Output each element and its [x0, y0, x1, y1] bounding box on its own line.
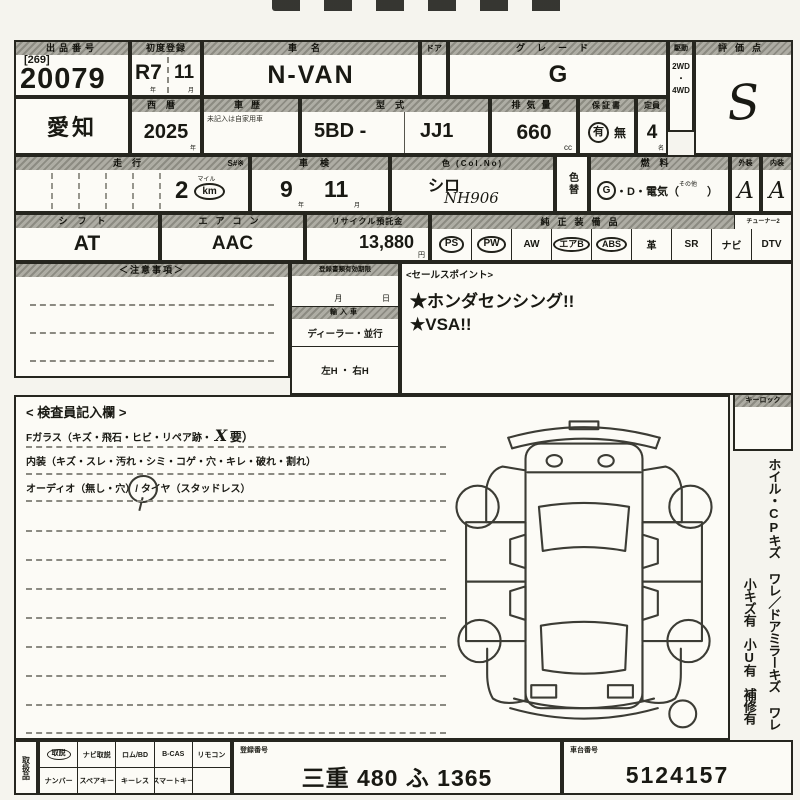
first-registration-month: 11: [174, 62, 194, 84]
model-code: JJ1: [420, 120, 453, 143]
equipment-item-label: 革: [647, 237, 657, 252]
sales-points-cell: <セールスポイント> ★ホンダセンシング!! ★VSA!!: [400, 262, 793, 395]
item-label: リモコン: [197, 750, 225, 760]
item-label: B-CAS: [162, 751, 184, 758]
drive-option-2wd: 2WD: [670, 61, 692, 73]
notes-dashed-line: [30, 332, 274, 334]
item-label: ロム/BD: [122, 750, 148, 760]
drive-option-4wd: 4WD: [670, 85, 692, 97]
item-label: スマートキー: [154, 776, 192, 786]
mile-char: マイル: [197, 174, 215, 183]
equipment-item-label: PW: [477, 236, 505, 253]
color-change-label: 色替: [565, 172, 580, 196]
shift-value: AT: [74, 232, 100, 256]
model-inner-divider: [404, 112, 405, 153]
year-char: 年: [150, 85, 156, 94]
equipment-item-label: SR: [685, 239, 699, 250]
first-registration-label: 初度登録: [132, 42, 200, 55]
auction-number-cell: 出品番号 [269] 20079: [14, 40, 130, 97]
inspection-year: 9: [280, 176, 293, 203]
equipment-item-dtv: DTV: [751, 229, 791, 260]
notes-label: ＜注意事項＞: [16, 264, 288, 277]
km-unit-circled: km: [194, 183, 224, 200]
exterior-grade: A: [737, 178, 754, 204]
score-cell: 評価点 S: [694, 40, 793, 155]
equipment-item-label: ナビ: [722, 237, 742, 252]
sales-point-1: ★ホンダセンシング!!: [402, 281, 791, 312]
inspector-dashed-line: [26, 473, 446, 475]
fuel-label: 燃料: [591, 157, 728, 170]
fuel-other-label: その他: [679, 179, 697, 188]
cropped-title-fragment: [272, 0, 572, 11]
region-value: 愛知: [47, 110, 97, 142]
tuner-label: チューナー2: [734, 215, 791, 229]
keylock-label: キーロック: [735, 395, 791, 407]
inspector-dashed-line: [26, 530, 446, 532]
era-month-divider: [167, 57, 169, 93]
inspector-line1-mark: X: [215, 426, 227, 445]
recycle-amount: 13,880: [359, 232, 414, 253]
inspector-dashed-line: [26, 675, 446, 677]
displacement-cell: 排気量 660 cc: [490, 97, 578, 155]
interior-grade-cell: 内装 A: [761, 155, 793, 213]
equipment-item-label: ABS: [596, 237, 627, 252]
door-cell: ドア: [420, 40, 448, 97]
yen-char: 円: [418, 250, 425, 260]
first-registration-era: R7: [135, 61, 162, 85]
car-top-view-diagram: [446, 409, 722, 735]
sales-points-label: <セールスポイント>: [402, 264, 791, 281]
model-code-cell: 型式 5BD - JJ1: [300, 97, 490, 155]
year-label: 西暦: [132, 99, 200, 112]
mileage-digit-slot: [53, 173, 80, 209]
recycle-label: リサイクル預託金: [307, 215, 428, 228]
handle-options: 左H ・ 右H: [292, 347, 398, 393]
inspector-dashed-line: [26, 446, 446, 448]
equipment-item-leather: 革: [631, 229, 671, 260]
drive-label: 駆動: [670, 42, 692, 55]
documents-cell: 登録書類有効期限 月 日 輸入車 ディーラー・並行 左H ・ 右H: [290, 262, 400, 395]
year-cell: 西暦 2025 年: [130, 97, 202, 155]
margin-remarks: ホイル・CPキズ ワレ／ドアミラーキズ ワレ 小キズ有 小U有 補修有: [736, 458, 785, 746]
item-label: キーレス: [121, 776, 149, 786]
history-label: 車歴: [204, 99, 298, 112]
capacity-label: 定員: [638, 99, 666, 112]
auction-number-value: 20079: [20, 63, 106, 96]
inspector-title: < 検査員記入欄 >: [26, 402, 126, 421]
inspection-label: 車検: [252, 157, 388, 170]
registration-number-cell: 登録番号 三重 480 ふ 1365: [232, 740, 562, 795]
inspection-month-char: 月: [354, 200, 360, 209]
equipment-item-label: DTV: [762, 239, 782, 250]
equipment-label: 純正装備品: [432, 215, 734, 229]
inspection-year-char: 年: [298, 200, 304, 209]
item-empty: [192, 768, 230, 793]
doc-expiry-label: 登録書類有効期限: [292, 264, 398, 276]
warranty-cell: 保証書 有 無: [578, 97, 636, 155]
margin-remark-line1: ホイル・CPキズ ワレ／ドアミラーキズ ワレ: [761, 458, 786, 746]
shift-label: シフト: [16, 215, 158, 228]
score-label: 評価点: [696, 42, 791, 55]
item-manual: 取説: [40, 742, 77, 767]
drive-option-dot: ・: [670, 73, 692, 85]
chassis-number-label: 車台番号: [570, 745, 598, 755]
mileage-label: 走行: [113, 158, 151, 168]
mileage-digit-slot: [107, 173, 134, 209]
mileage-digit-slot: [134, 173, 161, 209]
warranty-yes-circled: 有: [588, 122, 609, 143]
equipment-item-label: エアB: [553, 237, 590, 252]
aircon-cell: エアコン AAC: [160, 213, 305, 262]
shift-cell: シフト AT: [14, 213, 160, 262]
fuel-options: ・D・電気（: [616, 183, 679, 199]
item-remote: リモコン: [192, 742, 230, 767]
grade-cell: グレード G: [448, 40, 668, 97]
equipment-item-label: AW: [523, 239, 539, 250]
aircon-label: エアコン: [162, 215, 303, 228]
year-char: 年: [190, 143, 196, 152]
item-label: ナンバー: [45, 776, 73, 786]
inspector-dashed-line: [26, 646, 446, 648]
equipment-cell: 純正装備品 チューナー2 PS PW AW エアB ABS 革 SR ナビ DT…: [430, 213, 793, 262]
doc-month-char: 月: [334, 293, 342, 304]
equipment-item-airbag: エアB: [551, 229, 591, 260]
inspector-dashed-line: [26, 704, 446, 706]
keylock-cell: キーロック: [733, 393, 793, 451]
color-cell: 色 (Col.No) シロ NH906: [390, 155, 555, 213]
item-rom-bd: ロム/BD: [115, 742, 153, 767]
color-label: 色 (Col.No): [392, 157, 553, 170]
sales-point-2: ★VSA!!: [402, 312, 791, 335]
item-keyless: キーレス: [115, 768, 153, 793]
model-prefix: 5BD -: [314, 120, 366, 143]
inspector-section: < 検査員記入欄 > Fガラス（キズ・飛石・ヒビ・リペア跡・ X 要） 内装（キ…: [14, 395, 730, 740]
displacement-unit: cc: [564, 143, 572, 152]
grade-value: G: [549, 61, 568, 89]
inspector-line2: 内装（キズ・スレ・汚れ・シミ・コゲ・穴・キレ・破れ・割れ）: [26, 453, 316, 468]
item-spare-key: スペアキー: [77, 768, 115, 793]
margin-remark-line2: 小キズ有 小U有 補修有: [736, 458, 761, 746]
displacement-label: 排気量: [492, 99, 576, 112]
registration-number-value: 三重 480 ふ 1365: [302, 759, 493, 793]
inspector-dashed-line: [26, 559, 446, 561]
item-label: 取説: [47, 749, 71, 760]
mileage-s-label: S#※: [228, 157, 245, 170]
import-options: ディーラー・並行: [292, 319, 398, 347]
inspection-cell: 車検 9 年 11 月: [250, 155, 390, 213]
equipment-item-ps: PS: [432, 229, 471, 260]
fuel-cell: 燃料 G ・D・電気（ その他 ）: [589, 155, 730, 213]
capacity-unit: 名: [658, 143, 664, 152]
included-items-grid: 取説 ナビ取説 ロム/BD B-CAS リモコン ナンバー スペアキー キーレス…: [38, 740, 232, 795]
history-cell: 車歴 未記入は自家用車: [202, 97, 300, 155]
mileage-digit-slot: [80, 173, 107, 209]
mileage-cell: 走行 S#※ 2 マイル km: [14, 155, 250, 213]
registration-number-label: 登録番号: [240, 745, 268, 755]
color-number-handwritten: NH906: [444, 189, 499, 207]
exterior-label: 外装: [732, 157, 759, 170]
interior-label: 内装: [763, 157, 791, 170]
equipment-item-pw: PW: [471, 229, 511, 260]
capacity-cell: 定員 4 名: [636, 97, 668, 155]
equipment-item-label: PS: [439, 236, 464, 253]
first-registration-cell: 初度登録 R7 11 年 月: [130, 40, 202, 97]
import-label: 輸入車: [292, 307, 398, 319]
score-value: S: [725, 74, 762, 132]
equipment-item-aw: AW: [511, 229, 551, 260]
chassis-number-cell: 車台番号 5124157: [562, 740, 793, 795]
car-name-cell: 車名 N-VAN: [202, 40, 420, 97]
drive-cell: 駆動 2WD ・ 4WD: [668, 40, 694, 132]
item-bcas: B-CAS: [154, 742, 192, 767]
item-label: スペアキー: [80, 776, 115, 786]
inspector-dashed-line: [26, 588, 446, 590]
recycle-deposit-cell: リサイクル預託金 13,880 円: [305, 213, 430, 262]
notes-dashed-line: [30, 304, 274, 306]
equipment-item-sr: SR: [671, 229, 711, 260]
included-items-label-cell: 取扱品: [14, 740, 38, 795]
equipment-item-abs: ABS: [591, 229, 631, 260]
equipment-item-navi: ナビ: [711, 229, 751, 260]
auction-sheet: 出品番号 [269] 20079 初度登録 R7 11 年 月 車名 N-VAN…: [0, 0, 800, 800]
warranty-label: 保証書: [580, 99, 634, 112]
fuel-paren-close: ）: [707, 183, 718, 199]
chassis-number-value: 5124157: [626, 762, 730, 789]
grade-label: グレード: [450, 42, 666, 55]
month-char: 月: [188, 85, 194, 94]
inspection-month: 11: [324, 176, 348, 203]
exterior-grade-cell: 外装 A: [730, 155, 761, 213]
item-navi-manual: ナビ取説: [77, 742, 115, 767]
item-number-plate: ナンバー: [40, 768, 77, 793]
inspector-line1-post: 要）: [230, 430, 254, 444]
inspector-dashed-line: [26, 732, 446, 734]
included-items-label: 取扱品: [21, 756, 32, 780]
history-note: 未記入は自家用車: [204, 112, 298, 126]
notes-dashed-line: [30, 360, 274, 362]
region-cell: 愛知: [14, 97, 130, 155]
inspector-dashed-line: [26, 500, 446, 502]
car-name-value: N-VAN: [267, 61, 354, 90]
doc-day-char: 日: [382, 293, 390, 304]
color-change-cell: 色替: [555, 155, 589, 213]
item-smart-key: スマートキー: [154, 768, 192, 793]
item-label: ナビ取説: [83, 750, 111, 760]
fuel-gasoline-circled: G: [597, 181, 616, 200]
interior-grade: A: [769, 178, 786, 204]
inspector-dashed-line: [26, 617, 446, 619]
notes-cell: ＜注意事項＞: [14, 262, 290, 378]
car-name-label: 車名: [204, 42, 418, 55]
model-label: 型式: [302, 99, 488, 112]
door-label: ドア: [422, 42, 446, 55]
inspector-line1-pre: Fガラス（キズ・飛石・ヒビ・リペア跡・: [26, 433, 212, 444]
mileage-digit-slot: [26, 173, 53, 209]
warranty-no: 無: [614, 124, 626, 141]
mileage-value: 2: [175, 177, 188, 205]
aircon-value: AAC: [212, 233, 253, 255]
